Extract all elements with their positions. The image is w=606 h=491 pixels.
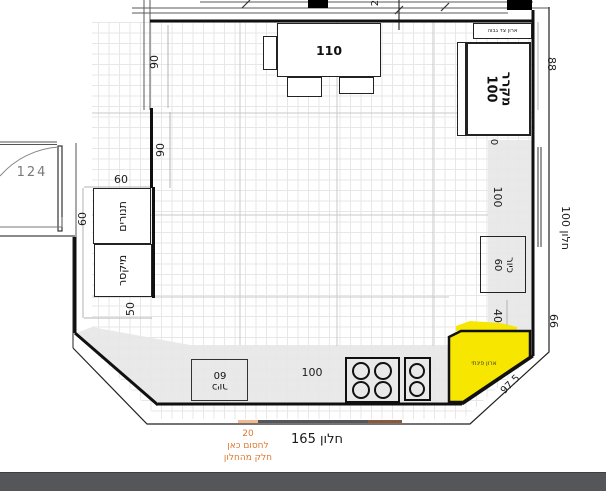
note-line1: לחסום כאן bbox=[226, 441, 270, 452]
sink-wall-size: 60 bbox=[491, 257, 503, 273]
dim-100-right: 100 bbox=[490, 182, 504, 212]
mixer-cabinet: מיקסר bbox=[94, 244, 152, 297]
sink-island-size: 60 bbox=[212, 368, 228, 380]
dim-0: 0 bbox=[486, 127, 500, 157]
window-segment-dark bbox=[258, 420, 368, 423]
chair-bottom-2 bbox=[339, 77, 374, 94]
dim-60-top: 60 bbox=[107, 173, 135, 187]
cooktop-2-burners bbox=[404, 357, 431, 401]
bottom-window-label: חלון 165 bbox=[282, 433, 352, 447]
dim-90-upper: 90 bbox=[148, 47, 162, 77]
sink-wall-label: כיור bbox=[503, 257, 515, 273]
chair-left bbox=[263, 36, 277, 70]
tall-side-cabinet-label: ארון צד גבוה bbox=[487, 28, 517, 34]
note-line2: חלק מהחלון bbox=[222, 453, 274, 464]
right-window-label: חלון 100 bbox=[558, 198, 572, 258]
burner-icon bbox=[409, 363, 425, 379]
ovens-cabinet: תנורים bbox=[93, 188, 151, 244]
dim-2-partial: 2 bbox=[369, 0, 383, 18]
wall-column bbox=[308, 0, 328, 8]
sink-wall: כיור 60 bbox=[480, 236, 526, 293]
window-blocked-segment bbox=[238, 420, 258, 423]
door-leaf bbox=[58, 146, 62, 231]
mixer-label: מיקסר bbox=[117, 255, 130, 286]
window-segment-brown bbox=[368, 420, 402, 423]
burner-icon bbox=[352, 381, 370, 399]
burner-icon bbox=[374, 381, 392, 399]
cooktop-4-burners bbox=[345, 357, 400, 403]
dim-door: 124 bbox=[14, 166, 50, 180]
highlight-streak-top bbox=[456, 321, 517, 331]
burner-icon bbox=[352, 362, 370, 380]
ovens-label: תנורים bbox=[115, 201, 128, 232]
entry-door bbox=[0, 142, 76, 237]
table: 110 bbox=[277, 23, 381, 77]
burner-icon bbox=[374, 362, 392, 380]
dim-90-lower: 90 bbox=[154, 135, 168, 165]
tall-side-cabinet: ארון צד גבוה bbox=[473, 23, 532, 39]
dim-60-side: 60 bbox=[76, 204, 90, 234]
wall-column bbox=[507, 0, 532, 10]
dim-88: 88 bbox=[544, 49, 558, 79]
sink-island-label: כיור bbox=[212, 380, 228, 392]
burner-icon bbox=[409, 381, 425, 397]
fridge-door-strip bbox=[457, 42, 466, 136]
fridge-label: מקרר bbox=[498, 72, 513, 107]
sink-island: כיור 60 bbox=[191, 359, 248, 401]
dim-50: 50 bbox=[124, 294, 138, 324]
dim-40: 40 bbox=[490, 301, 504, 331]
dim-66: 66 bbox=[546, 306, 560, 336]
table-size-label: 110 bbox=[316, 43, 342, 58]
chair-bottom-1 bbox=[287, 77, 322, 97]
dim-100-bottom: 100 bbox=[295, 366, 329, 380]
fridge: מקרר 100 bbox=[466, 42, 531, 136]
note-value: 20 bbox=[236, 429, 260, 440]
kitchen-floor-plan: 110 ארון צד גבוה מקרר 100 תנורים מיקסר כ… bbox=[0, 0, 606, 491]
corner-cabinet-label: ארון פינתי bbox=[458, 360, 510, 367]
right-window-symbol bbox=[538, 147, 541, 247]
bottom-bar bbox=[0, 472, 606, 491]
fridge-size: 100 bbox=[483, 72, 498, 107]
